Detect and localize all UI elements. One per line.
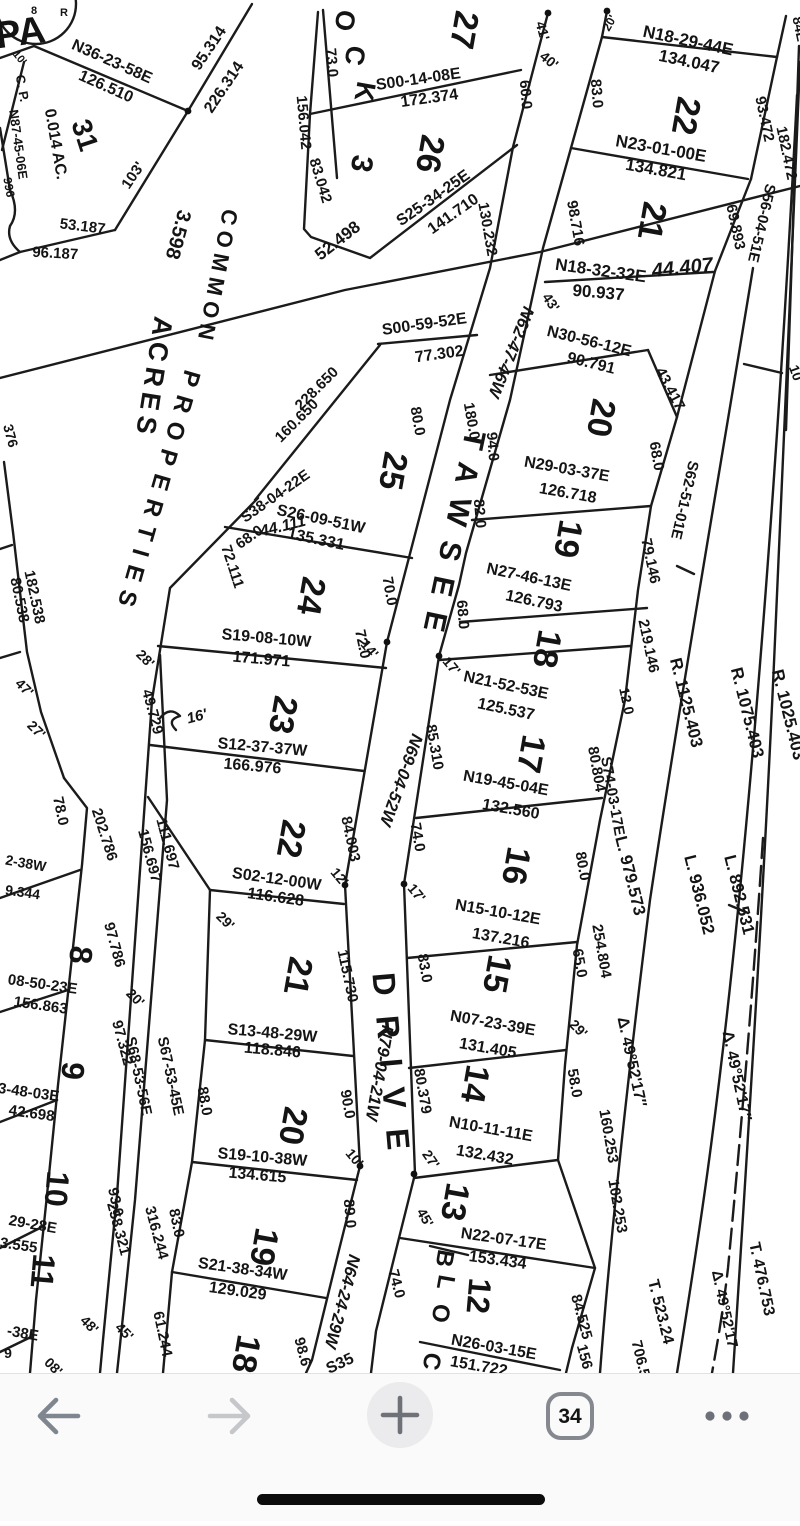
svg-text:156.863: 156.863: [13, 993, 69, 1017]
svg-text:172.374: 172.374: [400, 86, 460, 111]
svg-text:29': 29': [213, 908, 238, 933]
svg-text:70.0: 70.0: [379, 575, 401, 607]
svg-text:9: 9: [54, 1061, 91, 1082]
svg-text:83.0: 83.0: [165, 1207, 188, 1239]
svg-text:84.525: 84.525: [567, 1292, 595, 1341]
svg-text:171.971: 171.971: [232, 649, 291, 671]
svg-text:80.0: 80.0: [572, 850, 594, 882]
svg-text:17': 17': [405, 880, 429, 905]
svg-text:O: O: [425, 1302, 455, 1325]
svg-text:102.253: 102.253: [604, 1178, 630, 1234]
svg-text:74.0: 74.0: [384, 1268, 408, 1301]
svg-text:17: 17: [509, 732, 553, 776]
svg-text:8: 8: [31, 5, 37, 17]
svg-text:89.0: 89.0: [340, 1198, 359, 1229]
svg-text:N87-45-06E: N87-45-06E: [6, 109, 31, 181]
svg-text:N27-46-13E: N27-46-13E: [485, 560, 573, 595]
svg-text:58.0: 58.0: [564, 1067, 586, 1099]
svg-text:130.232: 130.232: [474, 201, 500, 257]
svg-text:2-38W: 2-38W: [4, 852, 48, 875]
svg-text:10': 10': [343, 1145, 367, 1170]
svg-text:23: 23: [261, 693, 305, 737]
svg-text:R: R: [60, 7, 68, 19]
svg-text:84.003: 84.003: [337, 815, 363, 863]
svg-text:22: 22: [269, 817, 313, 861]
svg-text:132.432: 132.432: [455, 1142, 515, 1169]
svg-text:16: 16: [494, 844, 538, 888]
svg-text:S35: S35: [324, 1350, 357, 1373]
svg-text:25: 25: [371, 449, 415, 493]
svg-text:24: 24: [289, 574, 333, 618]
svg-text:15: 15: [475, 952, 519, 996]
svg-text:41': 41': [533, 20, 553, 42]
svg-text:95.314: 95.314: [189, 23, 231, 73]
svg-text:134.615: 134.615: [228, 1165, 287, 1187]
svg-text:98.6: 98.6: [290, 1336, 314, 1369]
svg-text:PA: PA: [0, 9, 48, 58]
svg-text:08': 08': [41, 1354, 66, 1373]
svg-text:90.937: 90.937: [572, 281, 625, 304]
svg-text:126.718: 126.718: [538, 480, 598, 507]
svg-text:N15-10-12E: N15-10-12E: [454, 897, 542, 929]
svg-text:22: 22: [664, 94, 708, 138]
svg-text:153.434: 153.434: [468, 1248, 528, 1273]
svg-text:12: 12: [459, 1277, 498, 1316]
svg-text:N29-03-37E: N29-03-37E: [523, 454, 611, 486]
svg-text:93.472: 93.472: [751, 95, 777, 143]
svg-text:219.146: 219.146: [634, 618, 662, 675]
svg-text:97.786: 97.786: [100, 920, 128, 969]
svg-text:80.0: 80.0: [407, 405, 429, 437]
svg-text:T. 523.24: T. 523.24: [644, 1278, 676, 1346]
svg-text:258.321: 258.321: [103, 1200, 133, 1257]
svg-text:65.0: 65.0: [569, 947, 591, 979]
svg-text:48': 48': [77, 1312, 102, 1337]
svg-text:R. 1125.403: R. 1125.403: [666, 656, 707, 750]
svg-text:103': 103': [118, 159, 148, 192]
svg-text:17': 17': [440, 653, 464, 678]
svg-text:118.846: 118.846: [243, 1040, 301, 1062]
svg-text:TAWSEE: TAWSEE: [413, 428, 491, 650]
svg-text:83.042: 83.042: [305, 156, 335, 205]
svg-text:L: L: [431, 1273, 460, 1292]
svg-text:125.537: 125.537: [476, 695, 536, 724]
svg-text:27: 27: [442, 8, 486, 52]
svg-text:44.407: 44.407: [650, 254, 715, 282]
svg-text:16': 16': [185, 706, 209, 728]
svg-text:43': 43': [539, 290, 563, 315]
svg-text:20: 20: [271, 1104, 315, 1148]
svg-text:3-48-03E: 3-48-03E: [0, 1080, 60, 1105]
svg-text:29-28E: 29-28E: [7, 1212, 58, 1237]
svg-text:3: 3: [344, 153, 379, 175]
svg-text:34: 34: [558, 1405, 582, 1428]
svg-text:21: 21: [276, 954, 320, 998]
svg-text:Δ. 49°52'17″: Δ. 49°52'17″: [614, 1015, 650, 1109]
svg-text:18: 18: [224, 1332, 268, 1373]
svg-text:42.698: 42.698: [8, 1102, 56, 1125]
svg-text:B: B: [430, 1247, 460, 1269]
svg-text:61.244: 61.244: [149, 1310, 175, 1359]
svg-text:S62-51-01E: S62-51-01E: [667, 459, 702, 541]
svg-text:31: 31: [65, 115, 104, 154]
svg-text:53.187: 53.187: [59, 215, 107, 237]
svg-text:C: C: [338, 43, 371, 67]
svg-text:78.0: 78.0: [49, 795, 72, 827]
svg-text:166.976: 166.976: [223, 756, 282, 778]
svg-text:T. 476.753: T. 476.753: [745, 1241, 777, 1318]
svg-text:S00-59-52E: S00-59-52E: [381, 310, 468, 339]
svg-text:376: 376: [0, 422, 22, 449]
svg-text:9: 9: [4, 1345, 12, 1361]
svg-text:R. 1075.403: R. 1075.403: [727, 665, 768, 759]
svg-text:60.0: 60.0: [516, 79, 535, 110]
svg-text:20: 20: [579, 396, 623, 440]
svg-text:160.253: 160.253: [595, 1108, 621, 1164]
svg-text:90.0: 90.0: [337, 1088, 359, 1120]
svg-text:8: 8: [62, 945, 99, 966]
svg-text:C: C: [417, 1350, 447, 1372]
svg-text:73.0: 73.0: [322, 47, 341, 78]
svg-text:11: 11: [24, 1253, 63, 1290]
svg-text:98.716: 98.716: [563, 199, 588, 247]
svg-text:12.0: 12.0: [616, 686, 637, 716]
svg-text:706.5: 706.5: [628, 1339, 654, 1373]
svg-text:S74-03-17E: S74-03-17E: [597, 755, 628, 837]
svg-text:S67-53-45E: S67-53-45E: [154, 1035, 187, 1117]
svg-text:72.0: 72.0: [351, 628, 374, 660]
svg-text:N62-47-46W: N62-47-46W: [484, 304, 538, 402]
svg-text:254.804: 254.804: [588, 923, 614, 980]
svg-text:129.029: 129.029: [208, 1279, 268, 1304]
svg-text:77.302: 77.302: [414, 343, 465, 367]
svg-text:45': 45': [112, 1319, 137, 1344]
svg-text:28': 28': [133, 646, 158, 671]
svg-text:156.042: 156.042: [293, 95, 315, 151]
svg-text:S19-08-10W: S19-08-10W: [221, 626, 313, 651]
svg-text:43.417: 43.417: [652, 365, 689, 414]
svg-text:996: 996: [0, 176, 17, 198]
svg-text:68.0: 68.0: [646, 440, 668, 472]
svg-text:13: 13: [433, 1180, 477, 1224]
svg-text:83.0: 83.0: [587, 78, 606, 109]
svg-text:226.314: 226.314: [201, 59, 247, 117]
svg-text:20': 20': [123, 985, 148, 1010]
svg-text:132.560: 132.560: [481, 796, 541, 823]
svg-text:40': 40': [537, 48, 562, 72]
svg-text:19: 19: [546, 517, 590, 561]
svg-text:137.216: 137.216: [471, 925, 531, 952]
svg-text:O: O: [328, 8, 361, 34]
svg-text:3.598: 3.598: [161, 208, 195, 262]
svg-text:L. 892.531: L. 892.531: [720, 853, 758, 936]
svg-text:14: 14: [453, 1062, 497, 1106]
svg-text:COMMON: COMMON: [192, 207, 243, 348]
svg-text:45': 45': [414, 1205, 437, 1229]
svg-text:0.014 AC.: 0.014 AC.: [41, 108, 70, 181]
svg-text:156: 156: [573, 1343, 596, 1372]
svg-text:79.146: 79.146: [637, 537, 663, 585]
svg-text:27': 27': [419, 1147, 443, 1172]
svg-text:N10-11-11E: N10-11-11E: [448, 1114, 534, 1145]
svg-text:N21-52-53E: N21-52-53E: [462, 668, 550, 703]
svg-text:202.786: 202.786: [88, 806, 121, 863]
svg-text:18: 18: [525, 627, 569, 671]
svg-text:21: 21: [630, 199, 674, 243]
svg-text:L. 979.573: L. 979.573: [611, 834, 649, 917]
svg-text:83.0: 83.0: [414, 952, 436, 984]
svg-text:10: 10: [37, 1170, 76, 1209]
svg-text:26: 26: [408, 132, 452, 176]
svg-text:96.187: 96.187: [32, 244, 79, 263]
svg-text:115.730: 115.730: [334, 948, 362, 1004]
svg-text:84E: 84E: [789, 15, 800, 43]
svg-text:L. 936.052: L. 936.052: [680, 853, 718, 936]
svg-text:S56-04-51E: S56-04-51E: [744, 182, 779, 264]
